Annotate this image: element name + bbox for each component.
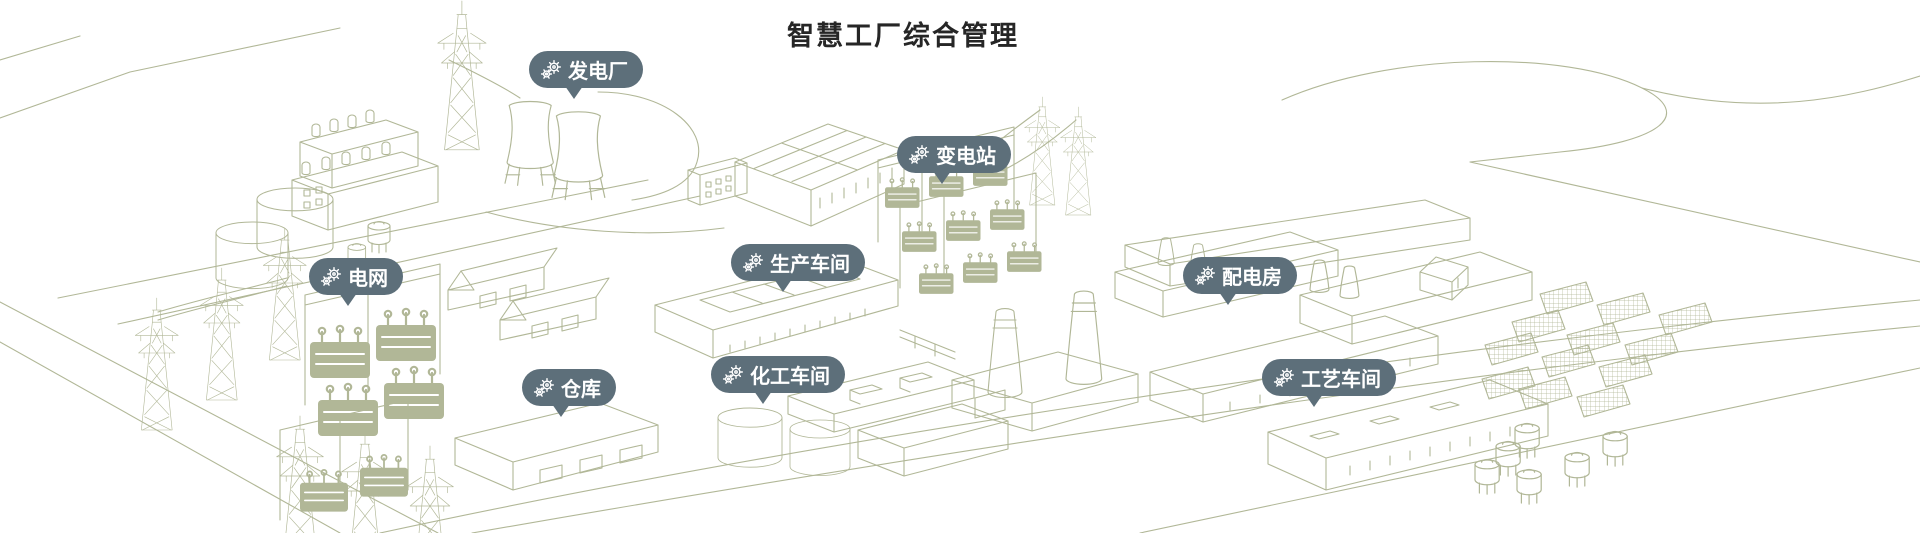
label-production-workshop[interactable]: 生产车间 [731, 244, 865, 281]
gable-warehouses [448, 248, 609, 340]
page-title: 智慧工厂综合管理 [787, 14, 1019, 53]
label-text: 变电站 [936, 140, 996, 169]
small-leg-tanks [1475, 423, 1627, 504]
grid-transformers [280, 264, 444, 520]
label-power-plant[interactable]: 发电厂 [529, 51, 643, 88]
label-text: 仓库 [561, 373, 601, 402]
label-distribution-room[interactable]: 配电房 [1183, 257, 1297, 294]
label-text: 化工车间 [750, 360, 830, 389]
solar-panel-array [1482, 282, 1712, 417]
gears-icon [908, 144, 930, 166]
label-text: 配电房 [1222, 261, 1282, 290]
boiler-house [292, 110, 438, 230]
gears-icon [533, 377, 555, 399]
label-chemical-workshop[interactable]: 化工车间 [711, 356, 845, 393]
roads-and-ground-lines [0, 28, 1920, 533]
gears-icon [722, 364, 744, 386]
smart-factory-canvas: 智慧工厂综合管理 发电厂 变电站 电网 生产车间 配电房 仓库 化工车间 工艺车… [0, 0, 1920, 533]
power-plant-cooling-towers [505, 92, 699, 200]
label-text: 生产车间 [770, 248, 850, 277]
gears-icon [320, 266, 342, 288]
skylight-factory-building [688, 124, 904, 226]
label-process-workshop[interactable]: 工艺车间 [1262, 359, 1396, 396]
label-power-grid[interactable]: 电网 [309, 258, 403, 295]
label-text: 工艺车间 [1301, 363, 1381, 392]
label-substation[interactable]: 变电站 [897, 136, 1011, 173]
label-text: 发电厂 [568, 55, 628, 84]
chimneys [900, 291, 1138, 431]
gears-icon [742, 252, 764, 274]
gears-icon [540, 59, 562, 81]
gears-icon [1194, 265, 1216, 287]
label-warehouse[interactable]: 仓库 [522, 369, 616, 406]
gears-icon [1273, 367, 1295, 389]
label-text: 电网 [348, 262, 388, 291]
factory-scene-illustration [0, 0, 1920, 533]
chemical-tanks [718, 404, 1008, 476]
